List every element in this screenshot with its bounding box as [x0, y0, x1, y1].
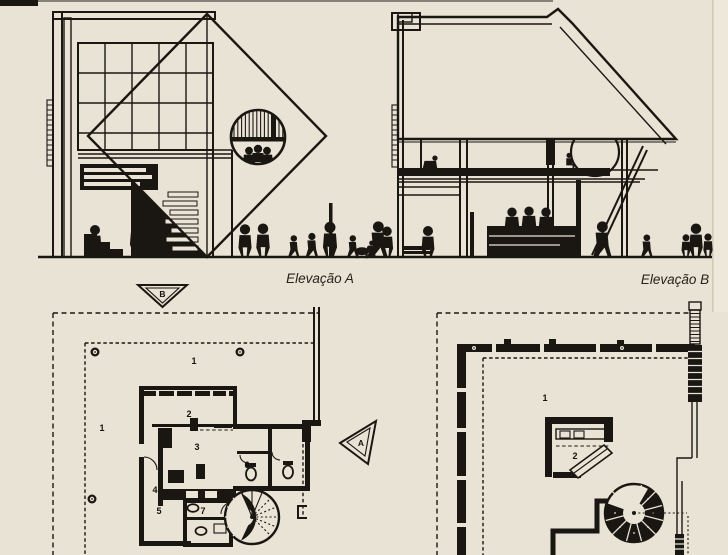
elevation-a-diamond-panel [88, 14, 326, 257]
scale-figure [238, 224, 251, 256]
plan-left-room-2-label: 2 [186, 409, 191, 419]
scale-figure [522, 207, 536, 226]
elevation-b-chimney [392, 13, 420, 30]
plan-left-room-5-label: 5 [156, 506, 161, 516]
plan-left-room-7-label: 7 [200, 506, 205, 516]
elevation-b-structure [392, 15, 658, 257]
plan-right-kiosk [545, 417, 613, 478]
section-marker-b-letter: B [159, 289, 165, 299]
elevation-a-interior [80, 164, 206, 256]
scale-figure [306, 233, 318, 256]
elevation-a-drawing [47, 12, 333, 257]
plan-left-room-3-label: 3 [194, 442, 199, 452]
scale-figure [682, 234, 691, 256]
plan-left-room-6-label: 6 [244, 460, 249, 470]
plan-right-spiral-stair [605, 484, 664, 542]
scale-figure [288, 235, 299, 256]
elevation-b-drawing [392, 9, 676, 257]
section-marker-a: A [340, 421, 376, 464]
plan-left-zone-1-label: 1 [99, 423, 104, 433]
scale-figure [381, 227, 393, 256]
section-marker-b: B [138, 285, 187, 307]
drawing-canvas: Elevação A Elevação B B A [0, 0, 728, 555]
elevation-a-caption: Elevação A [286, 271, 354, 286]
scale-figure [256, 223, 269, 256]
section-marker-a-letter: A [358, 438, 364, 448]
scale-figure [539, 208, 553, 227]
elevation-b-roof [398, 9, 676, 144]
scale-figure [505, 208, 519, 227]
plan-left-spiral-stair [225, 490, 279, 544]
plan-right-ladder-and-edge [664, 302, 702, 555]
scale-figure [689, 223, 702, 256]
plan-right-room-2-label: 2 [572, 451, 577, 461]
floor-plan-left: 1 1 2 3 4 5 6 7 [53, 307, 321, 555]
plan-right-zone-1-label: 1 [542, 393, 547, 403]
scale-figure [703, 234, 712, 256]
floor-plan-right: 1 2 [437, 302, 702, 555]
plan-left-room-4-label: 4 [152, 485, 157, 495]
porthole-window [231, 108, 286, 164]
scale-figure [641, 234, 652, 256]
plan-left-zone-1-label: 1 [191, 356, 196, 366]
scale-figure [593, 221, 611, 256]
elevation-b-caption: Elevação B [641, 272, 709, 287]
scale-figure [423, 155, 438, 168]
scanned-architectural-drawing: Elevação A Elevação B B A [0, 0, 728, 555]
